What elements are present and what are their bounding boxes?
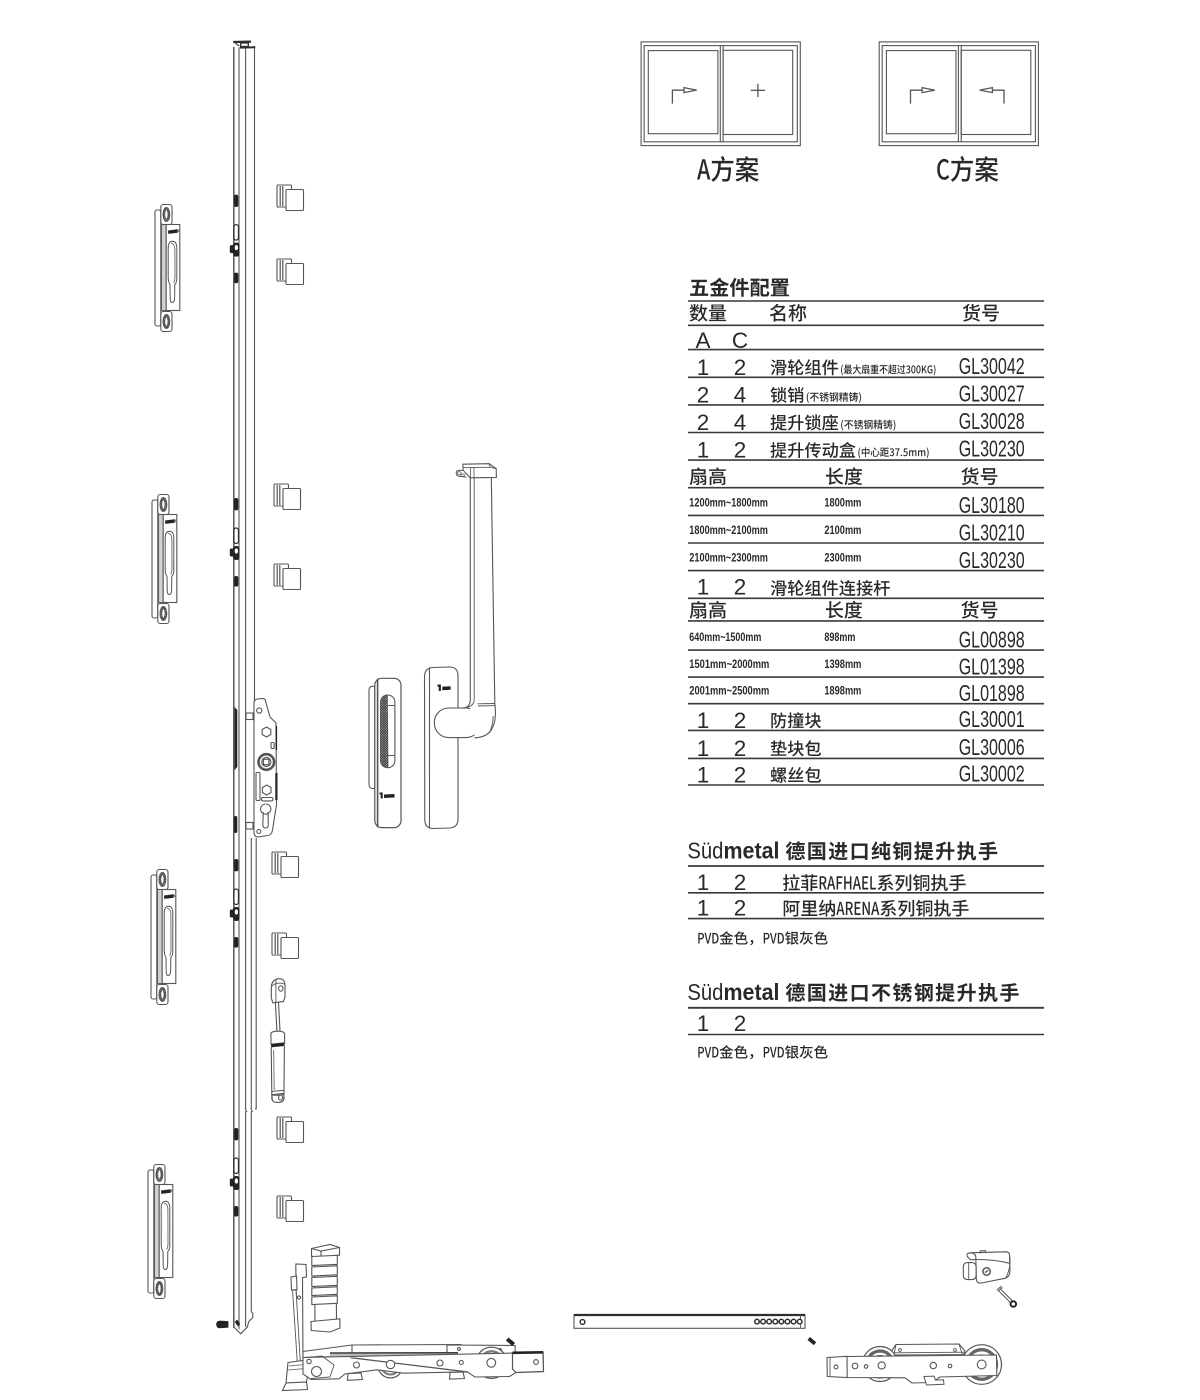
svg-text:GL01898: GL01898 bbox=[959, 680, 1025, 706]
svg-text:2300mm: 2300mm bbox=[824, 551, 861, 565]
svg-text:1: 1 bbox=[697, 708, 710, 733]
svg-text:GL30027: GL30027 bbox=[959, 380, 1025, 406]
svg-text:2: 2 bbox=[734, 708, 747, 733]
svg-text:2: 2 bbox=[734, 736, 747, 761]
svg-text:GL01398: GL01398 bbox=[959, 654, 1025, 680]
svg-text:1398mm: 1398mm bbox=[824, 657, 861, 671]
svg-text:2: 2 bbox=[734, 1011, 747, 1036]
svg-text:2: 2 bbox=[697, 410, 710, 435]
svg-text:2: 2 bbox=[734, 870, 747, 895]
svg-text:1898mm: 1898mm bbox=[824, 684, 861, 698]
svg-text:GL30180: GL30180 bbox=[959, 492, 1025, 518]
svg-text:2100mm~2300mm: 2100mm~2300mm bbox=[689, 551, 768, 565]
svg-text:metal: metal bbox=[724, 838, 780, 864]
svg-text:1: 1 bbox=[697, 355, 710, 380]
svg-text:2100mm: 2100mm bbox=[824, 523, 861, 537]
svg-text:GL30042: GL30042 bbox=[959, 353, 1025, 379]
svg-text:GL00898: GL00898 bbox=[959, 627, 1025, 653]
svg-text:2: 2 bbox=[697, 382, 710, 407]
svg-text:1: 1 bbox=[697, 870, 710, 895]
svg-text:898mm: 898mm bbox=[824, 630, 855, 644]
svg-text:1: 1 bbox=[697, 438, 710, 463]
svg-text:2: 2 bbox=[734, 438, 747, 463]
svg-text:GL30210: GL30210 bbox=[959, 520, 1025, 546]
svg-text:1: 1 bbox=[697, 896, 710, 921]
svg-text:Süd: Süd bbox=[687, 979, 723, 1005]
svg-text:1: 1 bbox=[697, 736, 710, 761]
svg-text:metal: metal bbox=[724, 979, 780, 1005]
svg-text:GL30002: GL30002 bbox=[959, 761, 1025, 787]
svg-text:Süd: Süd bbox=[687, 838, 723, 864]
svg-text:2: 2 bbox=[734, 355, 747, 380]
svg-text:1200mm~1800mm: 1200mm~1800mm bbox=[689, 495, 768, 509]
svg-text:1: 1 bbox=[697, 1011, 710, 1036]
svg-text:GL30028: GL30028 bbox=[959, 408, 1025, 434]
svg-text:2001mm~2500mm: 2001mm~2500mm bbox=[689, 684, 769, 698]
svg-text:1800mm~2100mm: 1800mm~2100mm bbox=[689, 523, 768, 537]
svg-text:2: 2 bbox=[734, 575, 747, 600]
svg-text:1: 1 bbox=[697, 575, 710, 600]
svg-text:4: 4 bbox=[734, 382, 747, 407]
svg-text:2: 2 bbox=[734, 763, 747, 788]
svg-text:GL30001: GL30001 bbox=[959, 706, 1025, 732]
svg-text:GL30230: GL30230 bbox=[959, 547, 1025, 573]
svg-text:GL30006: GL30006 bbox=[959, 734, 1025, 760]
svg-text:4: 4 bbox=[734, 410, 747, 435]
svg-text:1501mm~2000mm: 1501mm~2000mm bbox=[689, 657, 769, 671]
svg-text:640mm~1500mm: 640mm~1500mm bbox=[689, 630, 761, 644]
svg-text:GL30230: GL30230 bbox=[959, 436, 1025, 462]
svg-text:2: 2 bbox=[734, 896, 747, 921]
svg-text:1800mm: 1800mm bbox=[824, 495, 861, 509]
svg-text:1: 1 bbox=[697, 763, 710, 788]
